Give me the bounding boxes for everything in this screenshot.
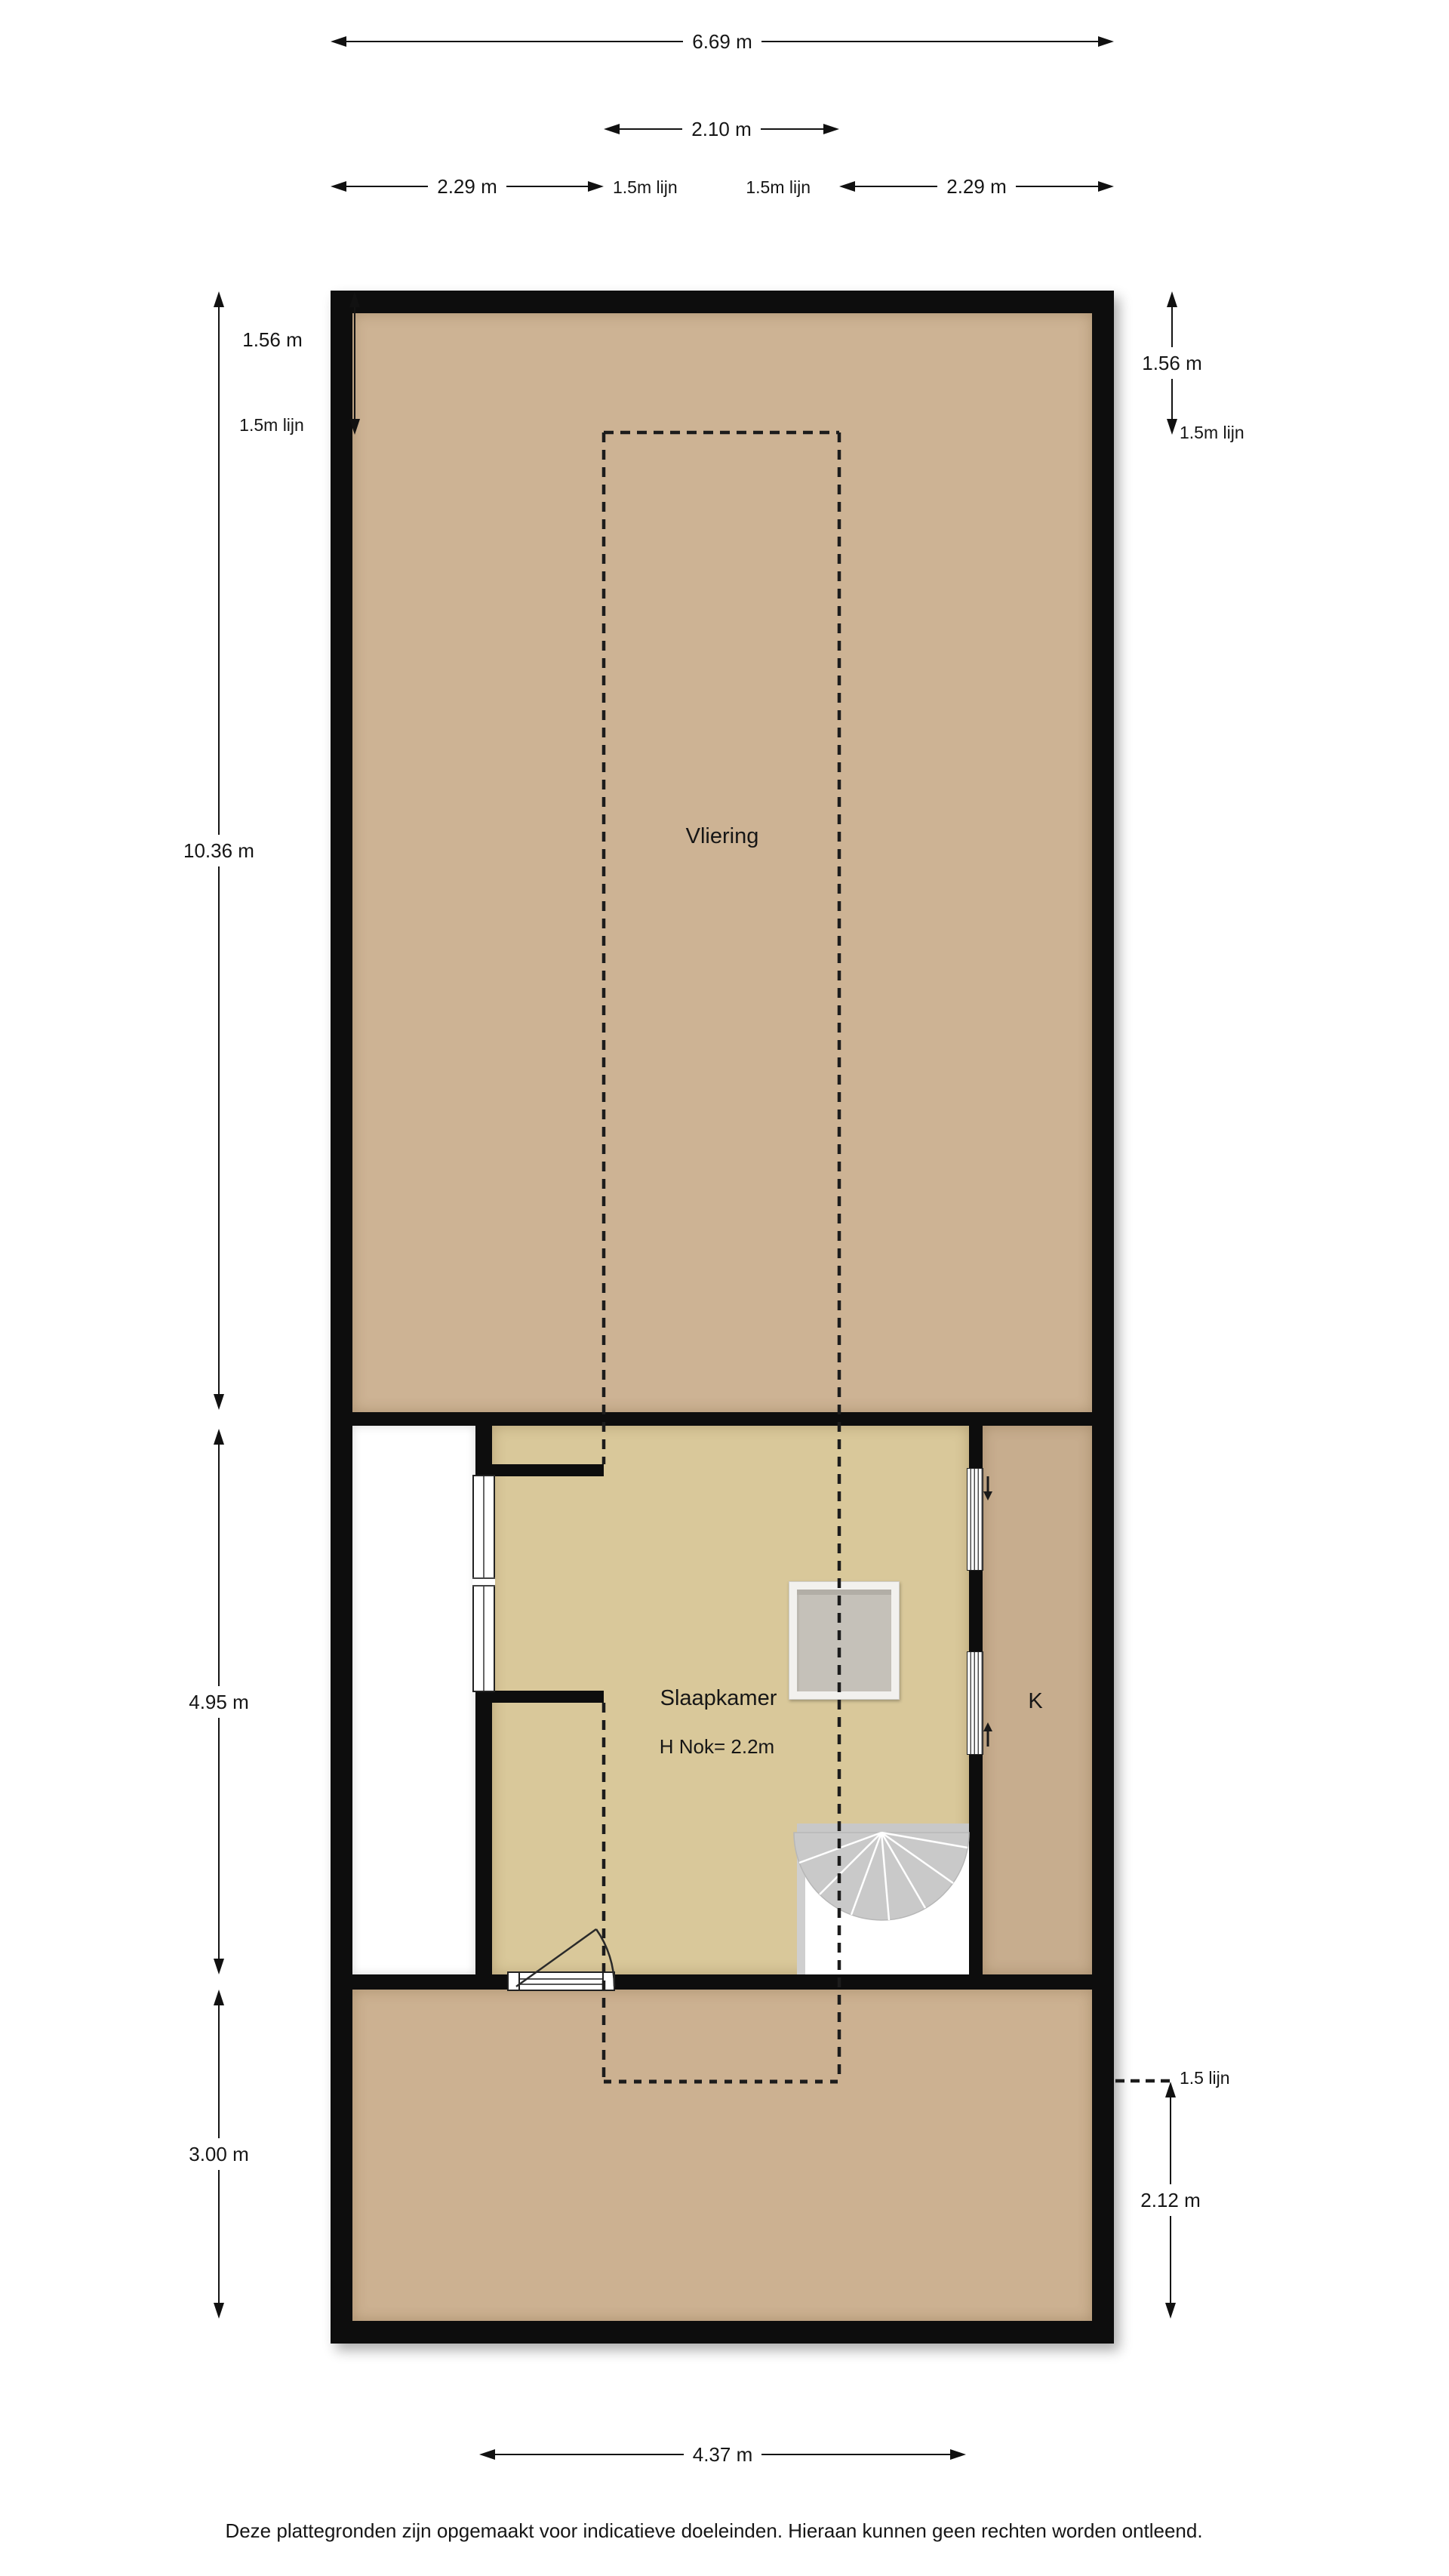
dim-mid-section-height: 4.95 m bbox=[174, 1429, 264, 1974]
lijn-label-right: 1.5m lijn bbox=[1180, 424, 1244, 442]
window-symbol bbox=[472, 1475, 495, 1692]
closet-wall-mid bbox=[969, 1571, 983, 1651]
closet-wall-lower bbox=[969, 1755, 983, 1974]
arrowhead-down bbox=[214, 1959, 224, 1974]
dim-top-left: 2.29 m bbox=[331, 175, 604, 198]
room-label-bedroom: Slaapkamer bbox=[628, 1688, 809, 1710]
arrowhead-up bbox=[214, 291, 224, 307]
door-threshold bbox=[507, 1971, 615, 1991]
dim-label: 4.37 m bbox=[684, 2445, 762, 2464]
roof-window bbox=[789, 1581, 900, 1700]
spiral-staircase bbox=[797, 1824, 969, 1974]
arrowhead-right bbox=[1098, 181, 1114, 192]
low-headroom-area bbox=[352, 1426, 475, 1974]
dim-label: 4.95 m bbox=[187, 1686, 251, 1718]
room-label-attic: Vliering bbox=[632, 826, 813, 848]
window-sash-divider bbox=[472, 1577, 495, 1587]
attic-floor-area bbox=[352, 313, 1092, 1412]
dim-attic-length: 10.36 m bbox=[174, 291, 264, 1410]
dim-label: 3.00 m bbox=[187, 2138, 251, 2170]
lijn-label-top-right: 1.5m lijn bbox=[700, 179, 811, 196]
arrowhead-down bbox=[214, 2303, 224, 2319]
dim-label: 10.36 m bbox=[182, 835, 256, 866]
arrowhead-down bbox=[214, 1394, 224, 1410]
lijn-label-bottom-right: 1.5 lijn bbox=[1180, 2070, 1229, 2087]
dim-bottom-width: 4.37 m bbox=[479, 2443, 966, 2466]
arrowhead-down bbox=[349, 419, 360, 435]
closet-door-panel-lower bbox=[967, 1651, 983, 1755]
outer-wall-right bbox=[1092, 291, 1114, 2344]
outer-wall-top bbox=[331, 291, 1114, 313]
dim-label: 1.56 m bbox=[1140, 347, 1204, 379]
outer-wall-bottom bbox=[331, 2321, 1114, 2344]
dim-attic-height-left bbox=[344, 291, 365, 435]
closet-wall-upper bbox=[969, 1426, 983, 1468]
room-label-closet: K bbox=[1019, 1691, 1052, 1713]
dim-label: 6.69 m bbox=[683, 32, 761, 51]
arrowhead-up bbox=[1165, 2082, 1176, 2097]
dim-label: 2.29 m bbox=[428, 177, 506, 196]
room-label-bedroom-height: H Nok= 2.2m bbox=[626, 1737, 808, 1756]
wall-stub-lower bbox=[475, 1691, 604, 1703]
threshold-post bbox=[602, 1973, 604, 1990]
stair-edge bbox=[797, 1824, 969, 1833]
dim-label: 2.29 m bbox=[937, 177, 1016, 196]
dim-mid-width: 2.10 m bbox=[604, 118, 839, 140]
bedroom-left-wall-lower bbox=[475, 1703, 492, 1974]
stair-edge bbox=[797, 1824, 805, 1974]
dim-lower-right-height: 2.12 m bbox=[1125, 2082, 1216, 2319]
arrowhead-right bbox=[588, 181, 604, 192]
dim-label: 2.12 m bbox=[1139, 2184, 1202, 2216]
arrowhead-left bbox=[839, 181, 855, 192]
threshold-line bbox=[520, 1984, 602, 1985]
divider-wall-lower-left bbox=[352, 1974, 507, 1990]
floorplan-page: { "title": "Vliering / zolder plattegron… bbox=[0, 0, 1449, 2576]
dim-top-right: 2.29 m bbox=[839, 175, 1114, 198]
dim-attic-height-right: 1.56 m bbox=[1127, 291, 1217, 435]
arrowhead-up bbox=[349, 291, 360, 307]
arrowhead-down bbox=[1167, 419, 1177, 435]
arrowhead-up bbox=[1167, 291, 1177, 307]
arrowhead-up bbox=[214, 1990, 224, 2005]
arrowhead-left bbox=[604, 124, 620, 134]
lijn-label-top-left: 1.5m lijn bbox=[613, 179, 678, 196]
dim-lower-section-height: 3.00 m bbox=[174, 1990, 264, 2319]
dim-total-width: 6.69 m bbox=[331, 30, 1114, 53]
threshold-post bbox=[518, 1973, 520, 1990]
threshold-line bbox=[520, 1978, 602, 1980]
outer-wall-left bbox=[331, 291, 352, 2344]
divider-wall-lower-right bbox=[615, 1974, 1092, 1990]
dim-label: 2.10 m bbox=[682, 119, 761, 139]
roof-window-glass bbox=[797, 1590, 891, 1691]
arrowhead-left bbox=[479, 2449, 495, 2460]
arrowhead-right bbox=[823, 124, 839, 134]
arrowhead-right bbox=[1098, 36, 1114, 47]
footer-disclaimer: Deze plattegronden zijn opgemaakt voor i… bbox=[0, 2519, 1428, 2543]
arrowhead-left bbox=[331, 181, 346, 192]
divider-wall-attic bbox=[352, 1412, 1092, 1426]
arrowhead-right bbox=[950, 2449, 966, 2460]
arrowhead-down bbox=[1165, 2303, 1176, 2319]
lower-section-floor-area bbox=[352, 1990, 1092, 2321]
arrowhead-up bbox=[214, 1429, 224, 1445]
arrowhead-left bbox=[331, 36, 346, 47]
closet-door-panel-upper bbox=[967, 1468, 983, 1571]
